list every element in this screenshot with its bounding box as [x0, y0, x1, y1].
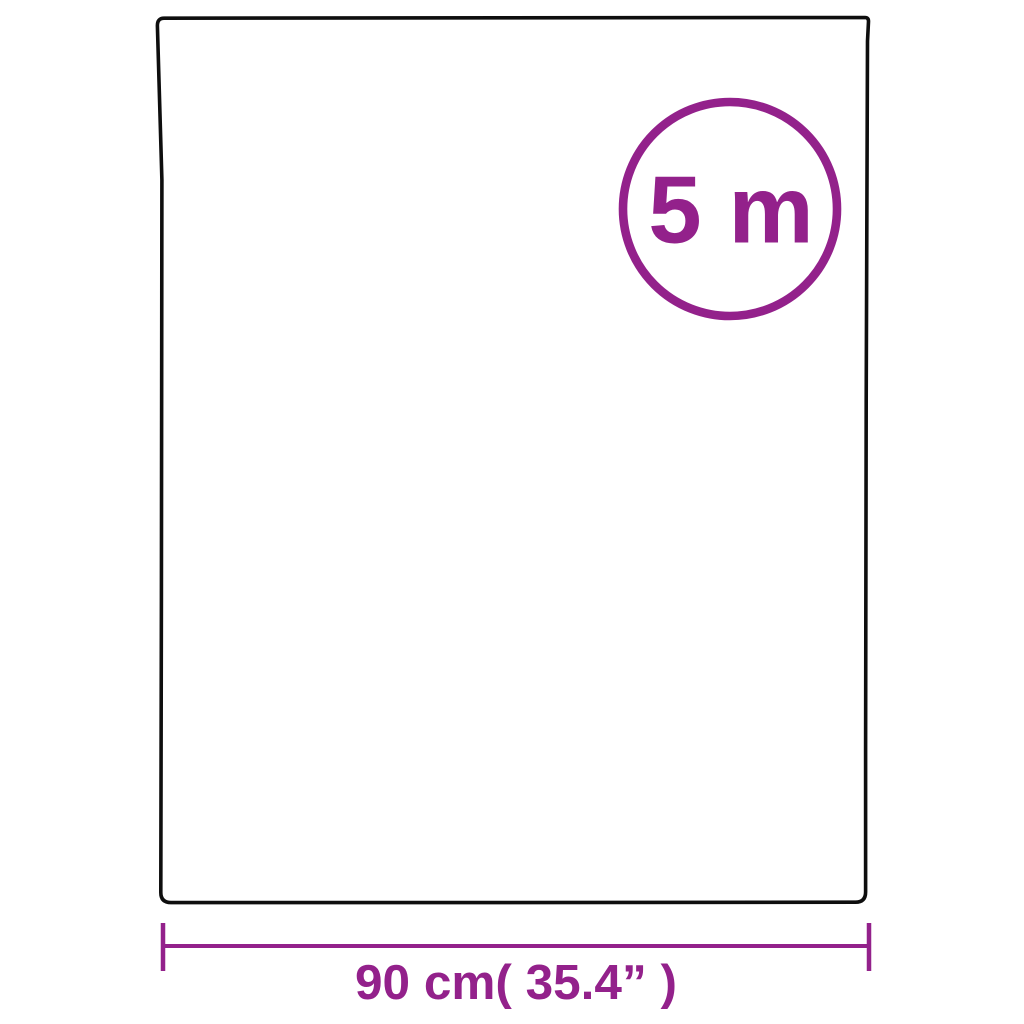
svg-text:5 m: 5 m: [648, 157, 813, 264]
svg-text:90 cm( 35.4” ): 90 cm( 35.4” ): [355, 955, 677, 1010]
